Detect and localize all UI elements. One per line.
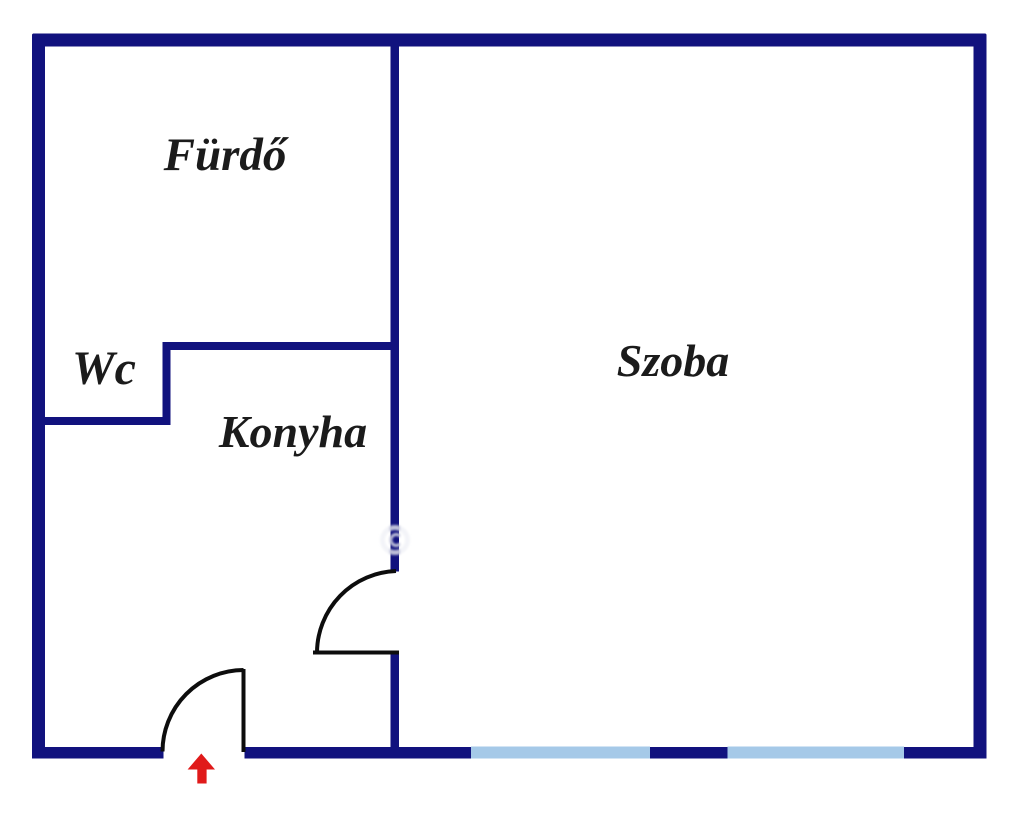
- svg-text:Konyha: Konyha: [218, 406, 367, 457]
- svg-text:Fürdő: Fürdő: [163, 129, 289, 181]
- svg-text:Wc: Wc: [72, 342, 136, 395]
- svg-text:Szoba: Szoba: [617, 335, 729, 386]
